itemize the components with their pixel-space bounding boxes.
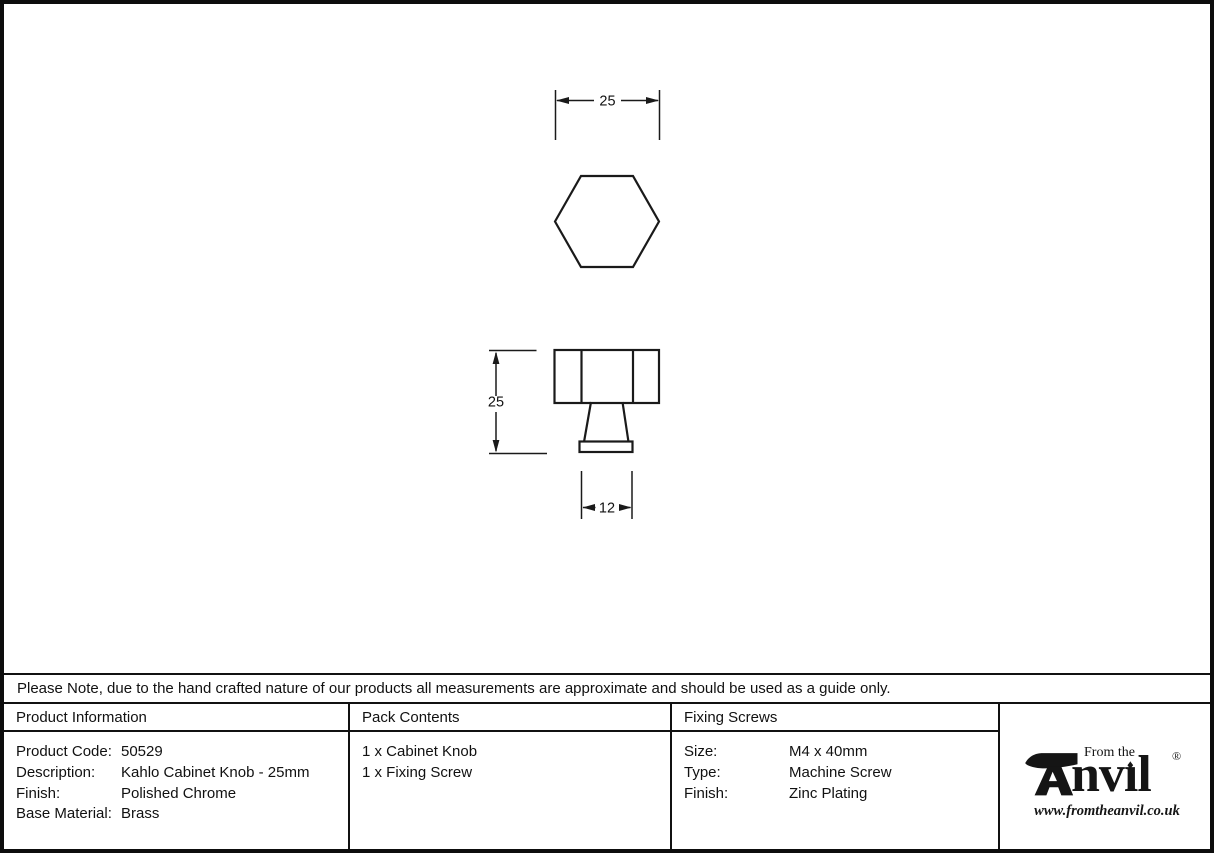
brand-dotless-i: ı (1124, 746, 1137, 803)
row-value: Polished Chrome (121, 784, 236, 805)
row-value: Zinc Plating (789, 784, 867, 805)
spec-sheet-page: 25 25 12 (0, 0, 1214, 853)
row-value: Kahlo Cabinet Knob - 25mm (121, 763, 309, 784)
neck-left-line (584, 402, 591, 442)
brand-letters: nv (1071, 746, 1124, 803)
pack-contents-body: 1 x Cabinet Knob 1 x Fixing Screw (350, 732, 670, 784)
row-value: M4 x 40mm (789, 742, 867, 763)
list-item: 1 x Fixing Screw (362, 763, 664, 784)
dim-arrow-left (556, 97, 569, 104)
knob-base (580, 442, 633, 453)
table-row: Product Code: 50529 (16, 742, 342, 763)
row-value: Machine Screw (789, 763, 892, 784)
top-width-dimension-label: 25 (599, 94, 615, 110)
side-view: 25 12 (488, 350, 659, 519)
row-label: Size: (684, 742, 789, 763)
product-information-body: Product Code: 50529 Description: Kahlo C… (4, 732, 348, 825)
measurement-note: Please Note, due to the hand crafted nat… (4, 673, 1210, 704)
logo-website-text: www.fromtheanvil.co.uk (1020, 803, 1194, 820)
table-row: Base Material: Brass (16, 804, 342, 825)
base-width-dimension-label: 12 (599, 501, 615, 517)
neck-right-line (623, 402, 629, 442)
row-label: Type: (684, 763, 789, 784)
hexagon-outline (555, 176, 659, 267)
top-view: 25 (555, 90, 660, 267)
info-table: Product Information Product Code: 50529 … (4, 704, 1210, 849)
pack-contents-header: Pack Contents (350, 704, 670, 732)
side-height-dimension-label: 25 (488, 395, 504, 411)
diamond-dot-icon: ♦ (1127, 757, 1134, 772)
measurement-note-text: Please Note, due to the hand crafted nat… (17, 680, 891, 697)
brand-letters: l (1137, 746, 1150, 803)
table-row: Description: Kahlo Cabinet Knob - 25mm (16, 763, 342, 784)
logo-brand-text: nvıl (1071, 749, 1151, 801)
fixing-screws-header: Fixing Screws (672, 704, 998, 732)
row-label: Finish: (684, 784, 789, 805)
row-label: Product Code: (16, 742, 121, 763)
table-row: Size: M4 x 40mm (684, 742, 992, 763)
fixing-screws-body: Size: M4 x 40mm Type: Machine Screw Fini… (672, 732, 998, 804)
table-row: Finish: Polished Chrome (16, 784, 342, 805)
dim-arrow-left (583, 504, 596, 511)
row-value: Brass (121, 804, 159, 825)
dim-arrow-down (493, 440, 500, 453)
fixing-screws-section: Fixing Screws Size: M4 x 40mm Type: Mach… (672, 704, 1000, 849)
table-row: Type: Machine Screw (684, 763, 992, 784)
product-information-header: Product Information (4, 704, 348, 732)
row-label: Description: (16, 763, 121, 784)
product-information-section: Product Information Product Code: 50529 … (4, 704, 350, 849)
row-value: 50529 (121, 742, 163, 763)
table-row: Finish: Zinc Plating (684, 784, 992, 805)
dim-arrow-right (646, 97, 659, 104)
row-label: Finish: (16, 784, 121, 805)
pack-contents-section: Pack Contents 1 x Cabinet Knob 1 x Fixin… (350, 704, 672, 849)
row-label: Base Material: (16, 804, 121, 825)
knob-head (555, 350, 660, 403)
dim-arrow-right (619, 504, 632, 511)
brand-logo-cell: From the nvıl ♦ ® www.fromtheanvil.co.uk (1000, 704, 1210, 849)
registered-trademark-icon: ® (1172, 749, 1181, 764)
dim-arrow-up (493, 352, 500, 365)
from-the-anvil-logo: From the nvıl ♦ ® www.fromtheanvil.co.uk (1024, 741, 1186, 817)
list-item: 1 x Cabinet Knob (362, 742, 664, 763)
